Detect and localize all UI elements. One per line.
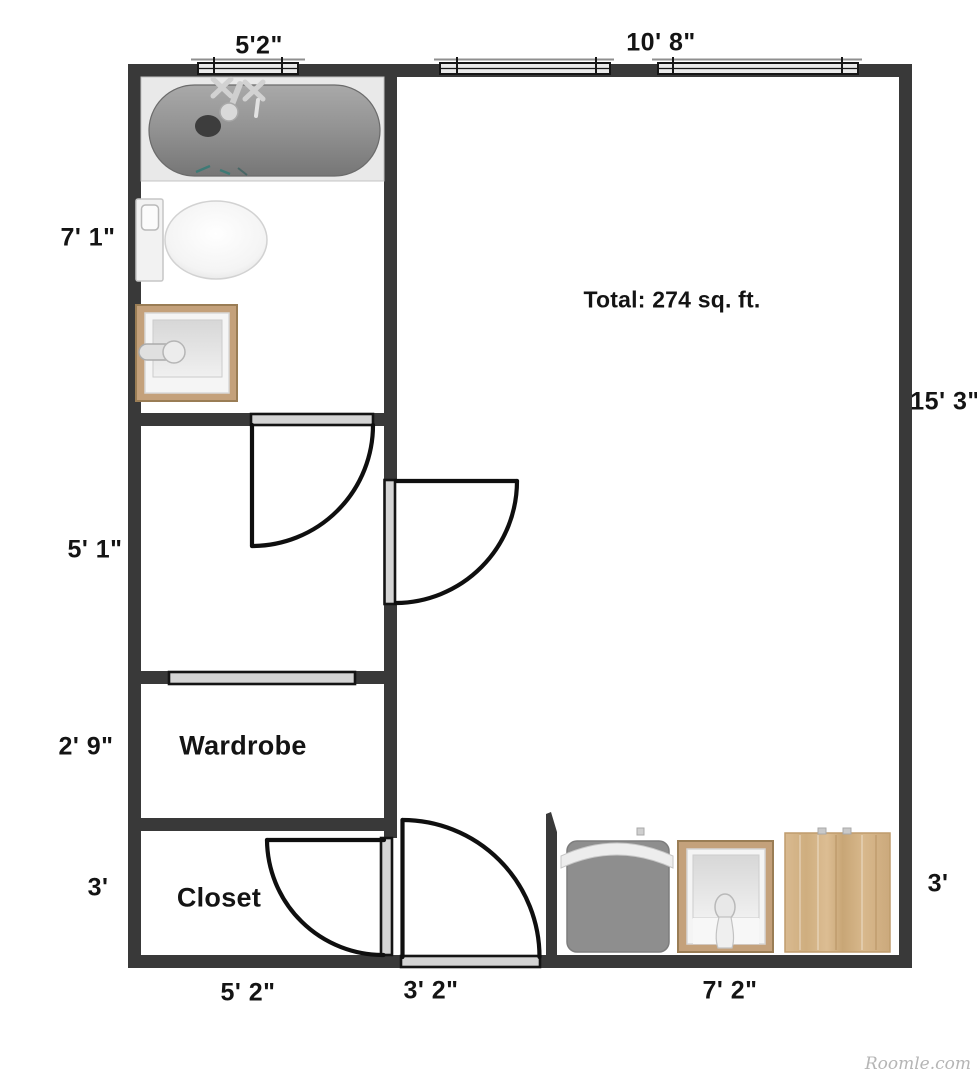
room-label-wardrobe: Wardrobe <box>179 733 306 760</box>
toilet-bowl <box>165 201 267 279</box>
door-hall <box>385 480 518 604</box>
kitchen-sink <box>678 841 773 952</box>
tub-drain <box>195 115 221 137</box>
dimension-top-bathroom-window: 5'2" <box>235 34 283 59</box>
dimension-left-hall: 5' 1" <box>67 538 122 563</box>
door-closet <box>267 838 392 955</box>
window-main-left <box>434 57 614 75</box>
chair <box>561 828 673 952</box>
room-label-closet: Closet <box>177 885 261 912</box>
dimension-right-main: 15' 3" <box>910 390 977 415</box>
dimension-left-closet: 3' <box>88 876 109 901</box>
toilet <box>136 199 267 281</box>
floorplan-canvas: 5'2" 10' 8" 7' 1" 15' 3" 5' 1" 2' 9" 3' … <box>0 0 977 1080</box>
table <box>785 828 890 952</box>
dimension-bottom-kitchen: 7' 2" <box>702 979 757 1004</box>
roomle-watermark: Roomle.com <box>865 1054 971 1074</box>
dimension-bottom-entry: 3' 2" <box>403 979 458 1004</box>
toilet-flush-button <box>142 205 159 230</box>
dimension-left-wardrobe: 2' 9" <box>58 735 113 760</box>
sink-faucet <box>139 341 185 363</box>
window-main-right <box>652 57 862 75</box>
dimension-right-kitchen: 3' <box>928 872 949 897</box>
bathroom-sink <box>136 305 237 401</box>
wall-entry-stub <box>546 812 557 955</box>
dimension-top-main: 10' 8" <box>626 31 695 56</box>
wall-hall-wardrobe-right <box>353 671 397 684</box>
window-bathroom <box>191 57 305 75</box>
door-bathroom <box>251 414 373 546</box>
kitchen-faucet <box>715 894 735 948</box>
floorplan-drawing <box>0 0 977 1080</box>
wall-right <box>899 64 912 968</box>
door-entry <box>401 820 540 967</box>
bathtub <box>141 77 384 181</box>
wall-wardrobe-closet <box>128 818 397 831</box>
dimension-left-bathroom: 7' 1" <box>60 226 115 251</box>
wall-bathroom-hall-left <box>128 413 251 426</box>
dimension-bottom-closet: 5' 2" <box>220 981 275 1006</box>
total-area-label: Total: 274 sq. ft. <box>584 289 761 312</box>
wall-center-lower <box>384 603 397 838</box>
sliding-door-wardrobe <box>169 672 355 684</box>
wall-hall-wardrobe-left <box>128 671 172 684</box>
wall-bathroom-hall-right <box>373 413 397 426</box>
